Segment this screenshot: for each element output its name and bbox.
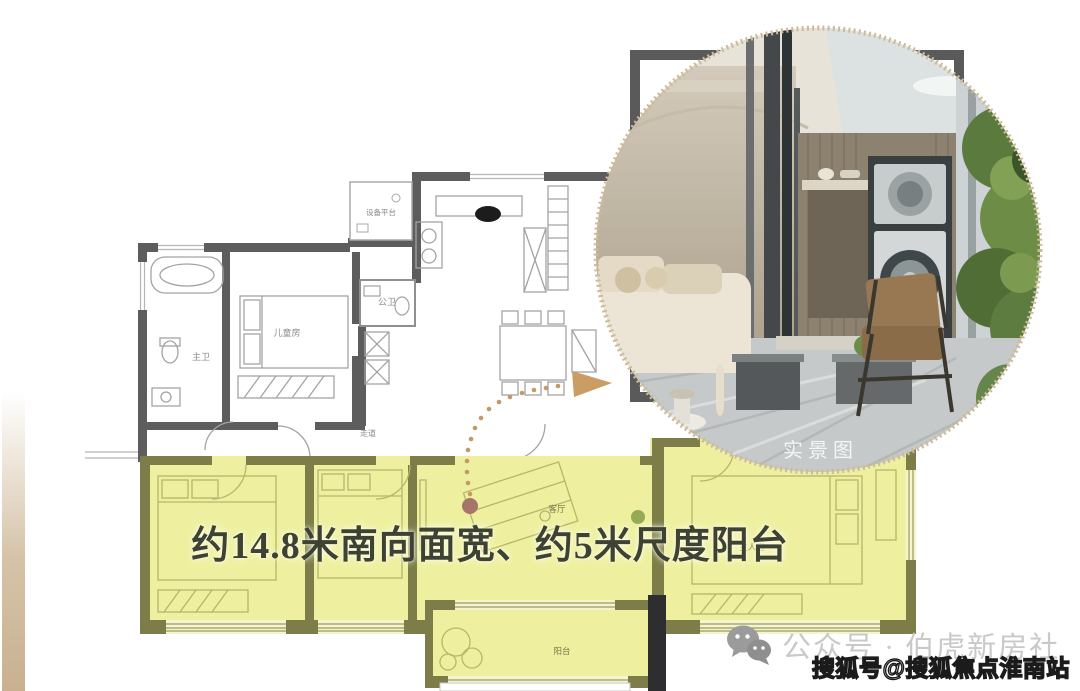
real-scene-photo: 实景图 [596,28,1040,472]
plan-plant-dot [631,510,645,524]
wechat-icon [726,624,772,666]
arrowhead [572,371,612,397]
label-guest-bathroom: 公卫 [378,297,396,307]
headline: 约14.8米南向面宽、约5米尺度阳台 [150,524,830,570]
sohu-watermark: 搜狐号@搜狐焦点淮南站 [812,649,1070,683]
kitchen-sink [475,206,501,222]
label-children-room: 儿童房 [273,327,300,338]
label-living-room: 客厅 [548,504,566,514]
label-master-bathroom: 主卫 [192,351,210,362]
label-equipment-platform: 设备平台 [366,207,396,217]
balcony-dark-wall [648,595,666,691]
photo-watermark-label: 实景图 [596,434,1040,463]
photo-art [596,28,1040,472]
promo-page: 设备平台 公卫 主卫 儿童房 走道 客厅 主人房 阳台 约14.8米南向面宽、约… [0,0,1080,691]
label-balcony: 阳台 [553,646,570,656]
label-corridor: 走道 [360,428,376,438]
